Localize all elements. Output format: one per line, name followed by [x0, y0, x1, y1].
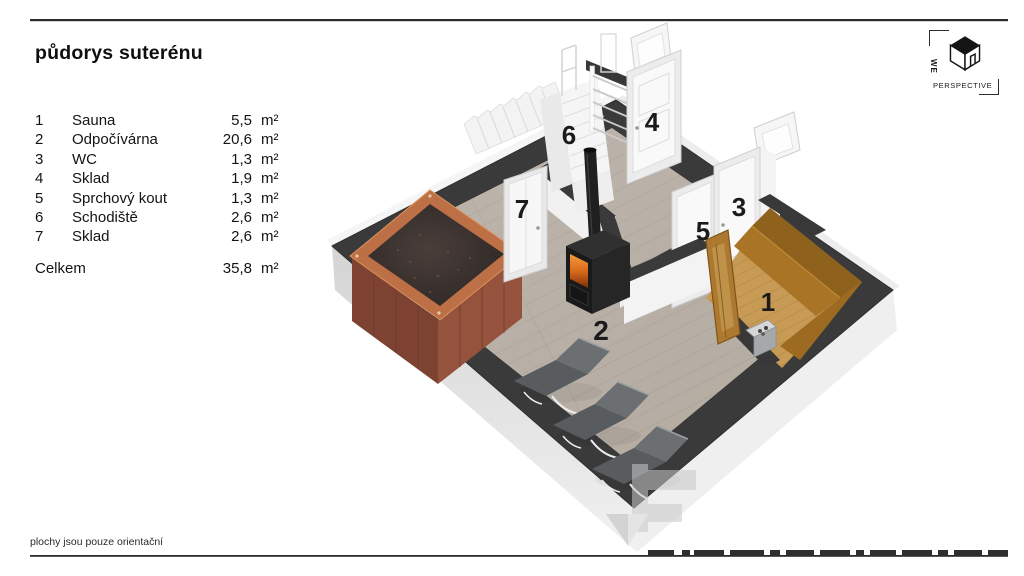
room-unit: m² — [252, 111, 286, 130]
legend-row: 7 Sklad 2,6 m² — [35, 227, 335, 246]
page-title: půdorys suterénu — [35, 42, 335, 65]
logo-bracket-bottom-right — [979, 79, 999, 95]
legend-row: 6 Schodiště 2,6 m² — [35, 208, 335, 227]
room-number: 1 — [35, 111, 72, 130]
door-handle — [721, 223, 725, 227]
room-name: Sauna — [72, 111, 208, 130]
room-area: 2,6 — [208, 227, 252, 246]
total-unit: m² — [252, 259, 286, 278]
disclaimer-note: plochy jsou pouze orientační — [30, 536, 163, 548]
legend-row: 2 Odpočívárna 20,6 m² — [35, 130, 335, 149]
room-name: WC — [72, 150, 208, 169]
door-7 — [504, 166, 547, 282]
label-sauna: 1 — [761, 287, 775, 317]
room-unit: m² — [252, 227, 286, 246]
room-number: 4 — [35, 169, 72, 188]
legend-row: 3 WC 1,3 m² — [35, 150, 335, 169]
total-area: 35,8 — [208, 259, 252, 278]
room-area: 1,3 — [208, 189, 252, 208]
room-number: 5 — [35, 189, 72, 208]
room-area: 1,9 — [208, 169, 252, 188]
label-storage-4: 4 — [645, 107, 660, 137]
room-name: Sklad — [72, 227, 208, 246]
room-unit: m² — [252, 208, 286, 227]
room-area: 2,6 — [208, 208, 252, 227]
label-shower: 5 — [696, 216, 710, 246]
door-handle — [635, 126, 639, 130]
total-label: Celkem — [35, 259, 208, 278]
room-unit: m² — [252, 150, 286, 169]
room-unit: m² — [252, 169, 286, 188]
label-wc: 3 — [732, 192, 746, 222]
logo-word-vertical: WE — [929, 59, 938, 74]
label-rest-room: 2 — [593, 315, 609, 346]
top-rule — [30, 19, 1008, 21]
legend-row: 4 Sklad 1,9 m² — [35, 169, 335, 188]
room-name: Sprchový kout — [72, 189, 208, 208]
legend-row: 5 Sprchový kout 1,3 m² — [35, 189, 335, 208]
watermark-cut-letters — [648, 550, 1008, 556]
room-name: Odpočívárna — [72, 130, 208, 149]
legend-panel: půdorys suterénu 1 Sauna 5,5 m² 2 Odpočí… — [35, 42, 335, 278]
brand-logo: WE PERSPECTIVE — [925, 26, 999, 96]
house-3d-icon — [946, 34, 984, 72]
room-unit: m² — [252, 130, 286, 149]
door-handle — [536, 226, 540, 230]
room-number: 2 — [35, 130, 72, 149]
room-area: 5,5 — [208, 111, 252, 130]
room-area: 1,3 — [208, 150, 252, 169]
room-number: 3 — [35, 150, 72, 169]
legend-row: 1 Sauna 5,5 m² — [35, 111, 335, 130]
room-name: Sklad — [72, 169, 208, 188]
room-legend: 1 Sauna 5,5 m² 2 Odpočívárna 20,6 m² 3 W… — [35, 111, 335, 278]
room-number: 7 — [35, 227, 72, 246]
room-unit: m² — [252, 189, 286, 208]
room-number: 6 — [35, 208, 72, 227]
floorplan-page: { "page": { "title": "půdorys suterénu",… — [0, 0, 1024, 576]
label-stairs: 6 — [562, 120, 576, 150]
label-storage-7: 7 — [515, 194, 529, 224]
legend-total-row: Celkem 35,8 m² — [35, 259, 335, 278]
room-name: Schodiště — [72, 208, 208, 227]
room-area: 20,6 — [208, 130, 252, 149]
